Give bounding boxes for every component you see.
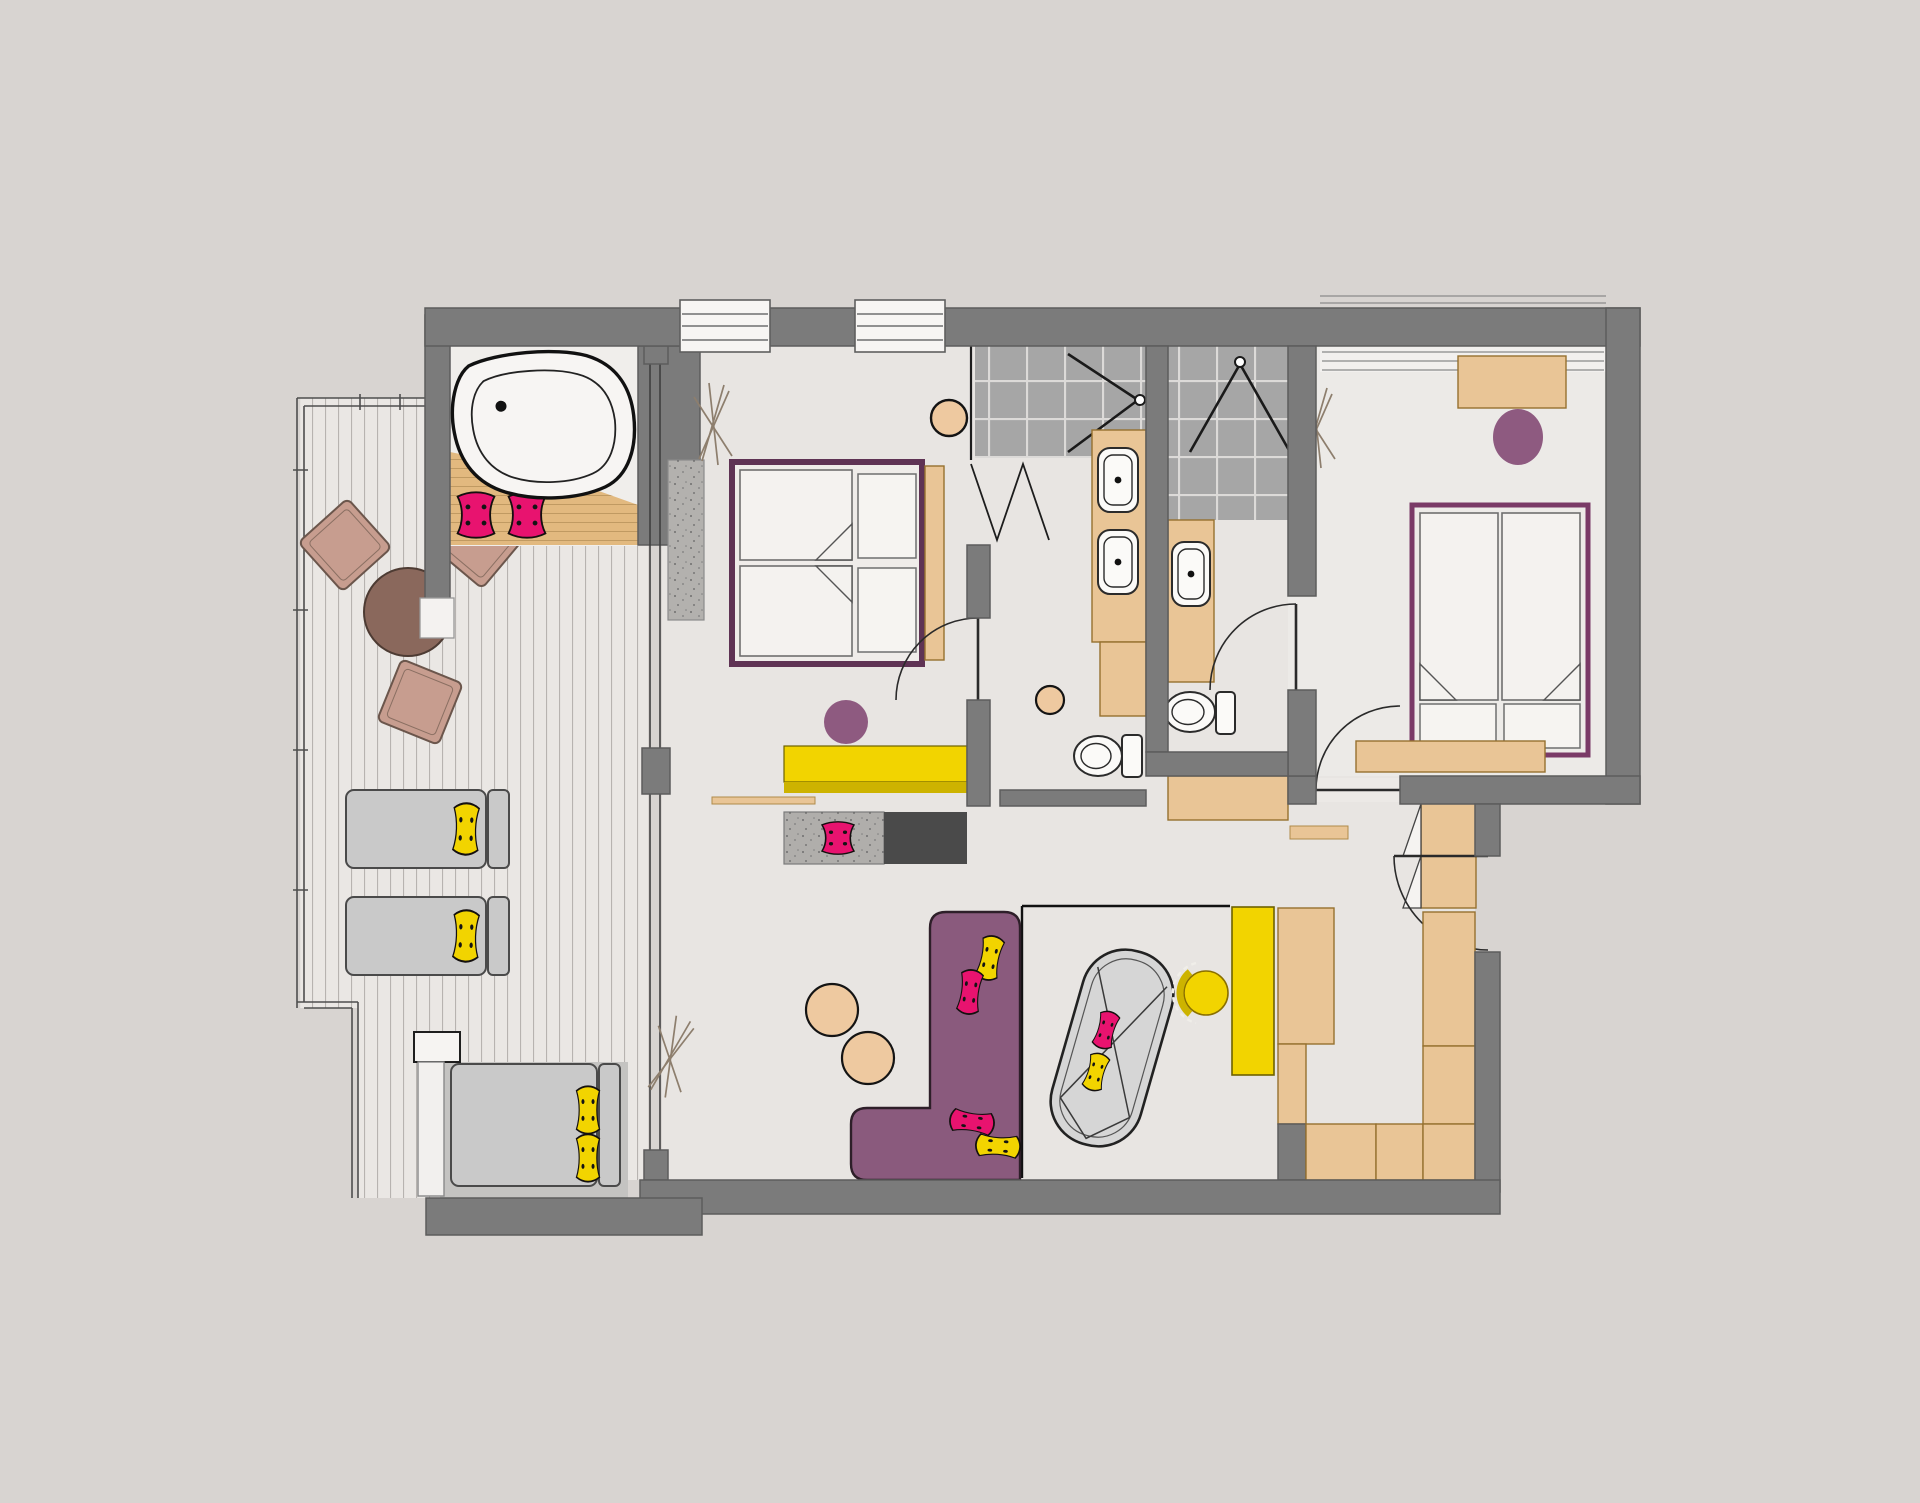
bottom-wall [640,1180,1500,1214]
pillow-1 [858,474,916,558]
cabinet-col2a [1423,912,1475,1046]
mullion-top [644,346,668,364]
entry-wall-upper [1475,804,1500,856]
shower1-hinge [1135,395,1145,405]
bedroom2-bottom-wall-b [1400,776,1640,804]
luggage-bench [784,812,967,864]
double-bed-master [732,462,944,664]
mullion-mid [642,748,670,794]
entry-wall-lower [1475,952,1500,1192]
bedroom2-left-wall-low [1288,690,1316,776]
window-1 [680,300,770,352]
bathrooms-mid-wall [1146,346,1168,752]
bedroom2-left-wall [1288,346,1316,596]
bedroom2-desk [1458,356,1566,408]
cabinet-col1b [1278,1044,1306,1124]
double-bed-2 [1412,505,1588,755]
sun-lounger-2 [346,897,509,975]
pouf-1 [806,984,858,1036]
purple-stool-1 [824,700,868,744]
terrace-bottom-wall [426,1198,702,1235]
niche-wall-cap [420,598,454,638]
mattress-2b [1502,513,1580,700]
vanity-cabinet [1100,642,1146,716]
toilet-1 [1074,735,1142,777]
pouf-2 [842,1032,894,1084]
sun-lounger-1 [346,790,509,868]
cabinet-col1a [1278,908,1334,1044]
niche-left-wall [425,315,450,600]
window-2 [855,300,945,352]
study-desk [1232,907,1274,1075]
right-wall [1606,308,1640,804]
bed2-foot-bench [1356,741,1545,772]
sun-lounger-3 [451,1064,620,1186]
cabinet-row-2 [1376,1124,1423,1180]
yellow-sideboard [784,746,967,793]
cabinet-row-3 [1423,1124,1475,1180]
floor-plan-canvas [0,0,1920,1503]
bench-cushion [822,822,854,854]
tan-stool-1 [931,400,967,436]
terrace-pillar [418,1062,444,1196]
wood-ledge [712,797,815,804]
terrace-step [414,1032,460,1062]
pillow-2 [858,568,916,652]
purple-stool-2 [1493,409,1543,465]
bath1-left-wall-b [967,700,990,806]
shower2-head [1235,357,1245,367]
tan-stool-2 [1036,686,1064,714]
cabinet-row-1 [1306,1124,1376,1180]
bedside-rug-speckle [668,460,704,620]
bath1-bottom-wall [1000,790,1146,806]
cabinet-wall-stub [1278,1124,1306,1180]
cabinet-col2b [1423,1046,1475,1124]
hall-sideboard [1168,776,1288,820]
shower2-grout [1168,346,1288,520]
hall-threshold [1290,826,1348,839]
mattress-2a [1420,513,1498,700]
sofa-cushion-yellow-2 [975,1134,1021,1159]
dark-unit [884,812,967,864]
bath1-left-wall-a [967,545,990,618]
bedroom2-bottom-wall-a [1288,776,1316,804]
toilet-2 [1165,692,1235,734]
top-wall [425,308,1640,346]
tub-cushion-1 [458,492,495,537]
mullion-bottom [644,1150,668,1180]
floor-plan-svg [0,0,1920,1503]
bath2-bottom-wall [1146,752,1288,776]
